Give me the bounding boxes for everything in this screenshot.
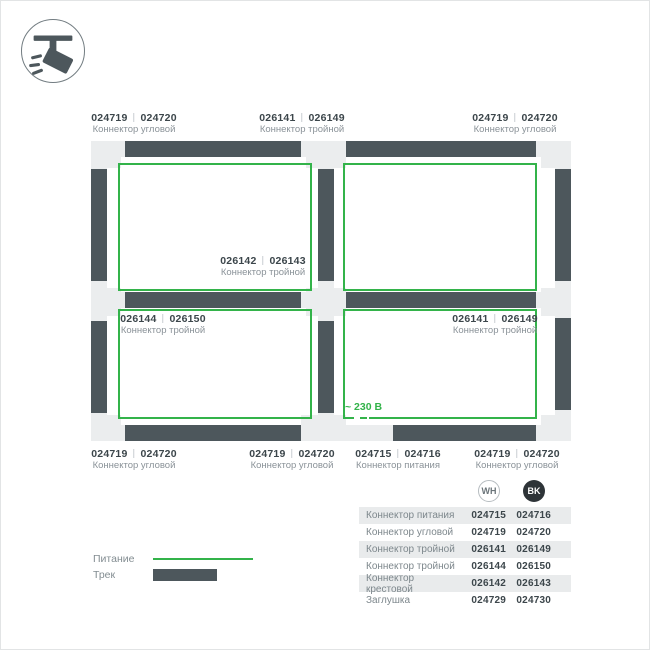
legend-power-line <box>153 558 253 560</box>
row-bk-number: 026143 <box>506 578 551 589</box>
connector-name: Коннектор угловой <box>249 461 335 472</box>
divider <box>495 314 496 323</box>
legend-power-label: Питание <box>93 553 153 565</box>
track-segment <box>91 321 107 413</box>
table-row: Коннектор угловой 024719 024720 <box>359 524 571 541</box>
wh-color-badge: WH <box>478 480 500 502</box>
track-segment <box>125 292 301 308</box>
row-bk-number: 024720 <box>506 527 551 538</box>
row-bk-number: 024716 <box>506 510 551 521</box>
bk-color-badge: BK <box>523 480 545 502</box>
table-row: Коннектор питания 024715 024716 <box>359 507 571 524</box>
article-numbers: 024719024720 <box>249 448 335 460</box>
article-numbers: 026144026150 <box>120 313 206 325</box>
track-segment <box>555 318 571 410</box>
connector-label: 024719024720 Коннектор угловой <box>474 448 560 472</box>
connector-name: Коннектор питания <box>355 461 441 472</box>
article-numbers: 026142026143 <box>220 255 306 267</box>
article-numbers: 024719024720 <box>91 448 177 460</box>
track-segment <box>346 141 536 157</box>
article-numbers: 026141026149 <box>259 112 345 124</box>
table-row: Заглушка 024729 024730 <box>359 592 571 609</box>
article-numbers: 024719024720 <box>472 112 558 124</box>
divider <box>163 314 164 323</box>
connector-name: Коннектор тройной <box>452 326 538 337</box>
connector-name: Коннектор угловой <box>91 125 177 136</box>
connector-cover <box>91 415 121 441</box>
connector-name: Коннектор тройной <box>220 268 306 279</box>
legend-track-label: Трек <box>93 569 153 581</box>
connector-cover <box>541 141 571 168</box>
divider <box>515 113 516 122</box>
legend: Питание Трек <box>93 551 253 583</box>
connector-cover <box>306 141 346 168</box>
row-name: Коннектор крестовой <box>359 573 461 595</box>
connector-label: 026144026150 Коннектор тройной <box>120 313 206 337</box>
row-wh-number: 026144 <box>461 561 506 572</box>
track-segment <box>318 169 334 281</box>
connector-label: 024715024716 Коннектор питания <box>355 448 441 472</box>
row-wh-number: 026141 <box>461 544 506 555</box>
connector-cover <box>91 141 121 168</box>
track-light-icon-circle <box>21 19 85 83</box>
row-bk-number: 026150 <box>506 561 551 572</box>
connector-name: Коннектор угловой <box>91 461 177 472</box>
power-feed-line <box>369 417 537 419</box>
divider <box>302 113 303 122</box>
article-numbers: 024715024716 <box>355 448 441 460</box>
divider <box>398 449 399 458</box>
divider <box>517 449 518 458</box>
row-wh-number: 024729 <box>461 595 506 606</box>
track-segment <box>125 141 301 157</box>
voltage-label: ~ 230 В <box>345 401 382 413</box>
track-segment <box>346 292 536 308</box>
row-name: Коннектор тройной <box>359 561 461 572</box>
track-segment <box>393 425 536 441</box>
product-diagram-page: ~ 230 В 024719024720 Коннектор угловой 0… <box>0 0 650 650</box>
article-numbers: 024719024720 <box>474 448 560 460</box>
color-code-table: WH BK Коннектор питания 024715 024716 Ко… <box>359 480 571 609</box>
connector-label: 024719024720 Коннектор угловой <box>472 112 558 136</box>
row-name: Коннектор тройной <box>359 544 461 555</box>
table-row: Коннектор тройной 026141 026149 <box>359 541 571 558</box>
legend-track-bar <box>153 569 217 581</box>
divider <box>292 449 293 458</box>
track-segment <box>91 169 107 281</box>
row-bk-number: 026149 <box>506 544 551 555</box>
track-segment <box>555 169 571 281</box>
connector-name: Коннектор угловой <box>474 461 560 472</box>
divider <box>134 113 135 122</box>
connector-name: Коннектор угловой <box>472 125 558 136</box>
row-wh-number: 024719 <box>461 527 506 538</box>
legend-track-row: Трек <box>93 567 253 583</box>
connector-cover <box>306 288 346 316</box>
article-numbers: 026141026149 <box>452 313 538 325</box>
connector-label: 026142026143 Коннектор тройной <box>220 255 306 279</box>
row-wh-number: 026142 <box>461 578 506 589</box>
article-numbers: 024719024720 <box>91 112 177 124</box>
connector-name: Коннектор тройной <box>120 326 206 337</box>
track-segment <box>125 425 301 441</box>
connector-label: 026141026149 Коннектор тройной <box>259 112 345 136</box>
track-light-icon <box>22 19 84 83</box>
track-segment <box>318 321 334 413</box>
connector-label: 024719024720 Коннектор угловой <box>91 112 177 136</box>
power-line-loop <box>343 163 537 291</box>
connector-label: 024719024720 Коннектор угловой <box>91 448 177 472</box>
table-header: WH BK <box>359 480 571 503</box>
connector-name: Коннектор тройной <box>259 125 345 136</box>
row-bk-number: 024730 <box>506 595 551 606</box>
power-feed-dash <box>345 417 367 419</box>
power-connector-cover <box>346 425 393 441</box>
connector-cover <box>541 415 571 441</box>
divider <box>134 449 135 458</box>
connector-cover <box>91 288 121 316</box>
row-name: Коннектор питания <box>359 510 461 521</box>
connector-cover <box>541 288 571 316</box>
row-name: Заглушка <box>359 595 461 606</box>
row-wh-number: 024715 <box>461 510 506 521</box>
row-name: Коннектор угловой <box>359 527 461 538</box>
divider <box>263 256 264 265</box>
connector-label: 026141026149 Коннектор тройной <box>452 313 538 337</box>
table-row: Коннектор крестовой 026142 026143 <box>359 575 571 592</box>
connector-label: 024719024720 Коннектор угловой <box>249 448 335 472</box>
legend-power-row: Питание <box>93 551 253 567</box>
